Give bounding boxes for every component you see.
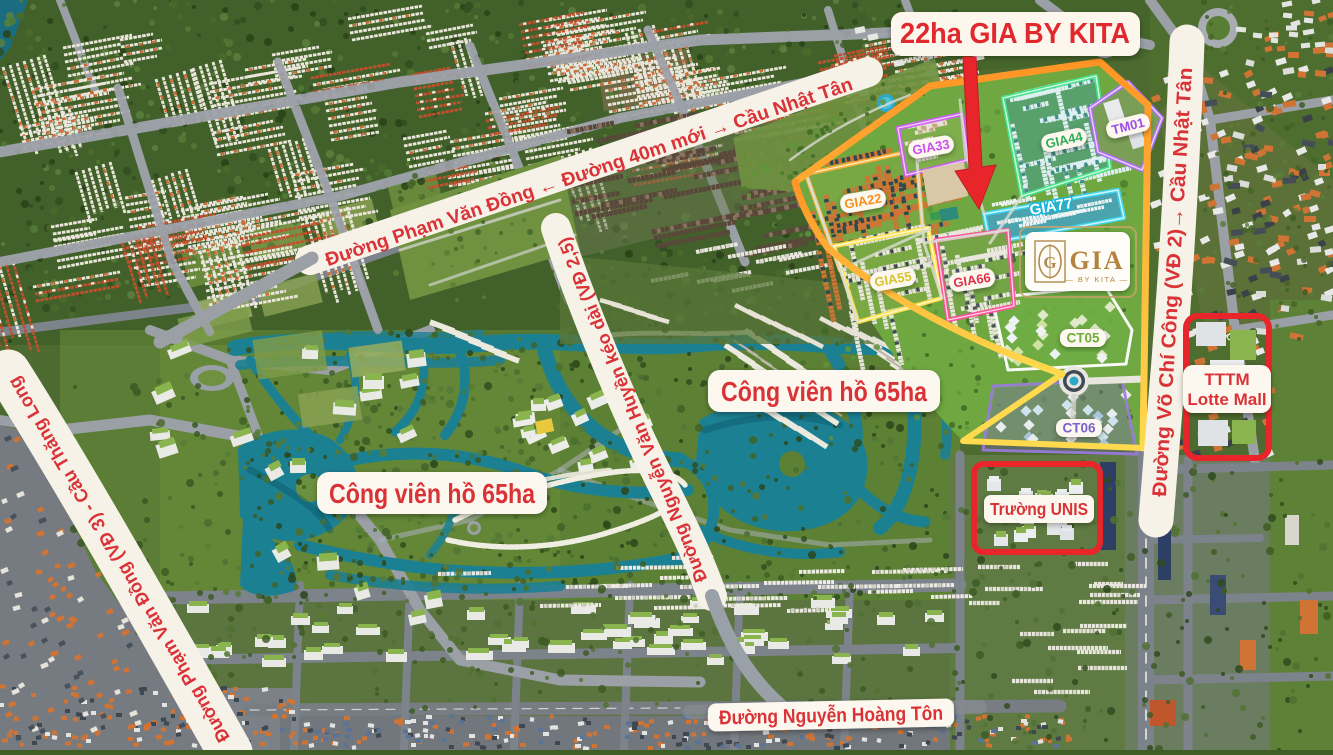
svg-text:Công viên hồ 65ha: Công viên hồ 65ha [721,376,927,407]
svg-text:Trường UNIS: Trường UNIS [990,499,1088,519]
svg-text:Lotte Mall: Lotte Mall [1187,390,1266,409]
svg-text:22ha GIA BY KITA: 22ha GIA BY KITA [900,18,1130,50]
svg-text:CT05: CT05 [1066,331,1100,346]
svg-text:— BY KITA —: — BY KITA — [1065,275,1128,284]
svg-text:CT06: CT06 [1062,421,1096,436]
svg-text:TTTM: TTTM [1204,370,1249,389]
svg-text:GIA: GIA [1069,246,1124,275]
svg-text:Công viên hồ 65ha: Công viên hồ 65ha [329,478,535,509]
